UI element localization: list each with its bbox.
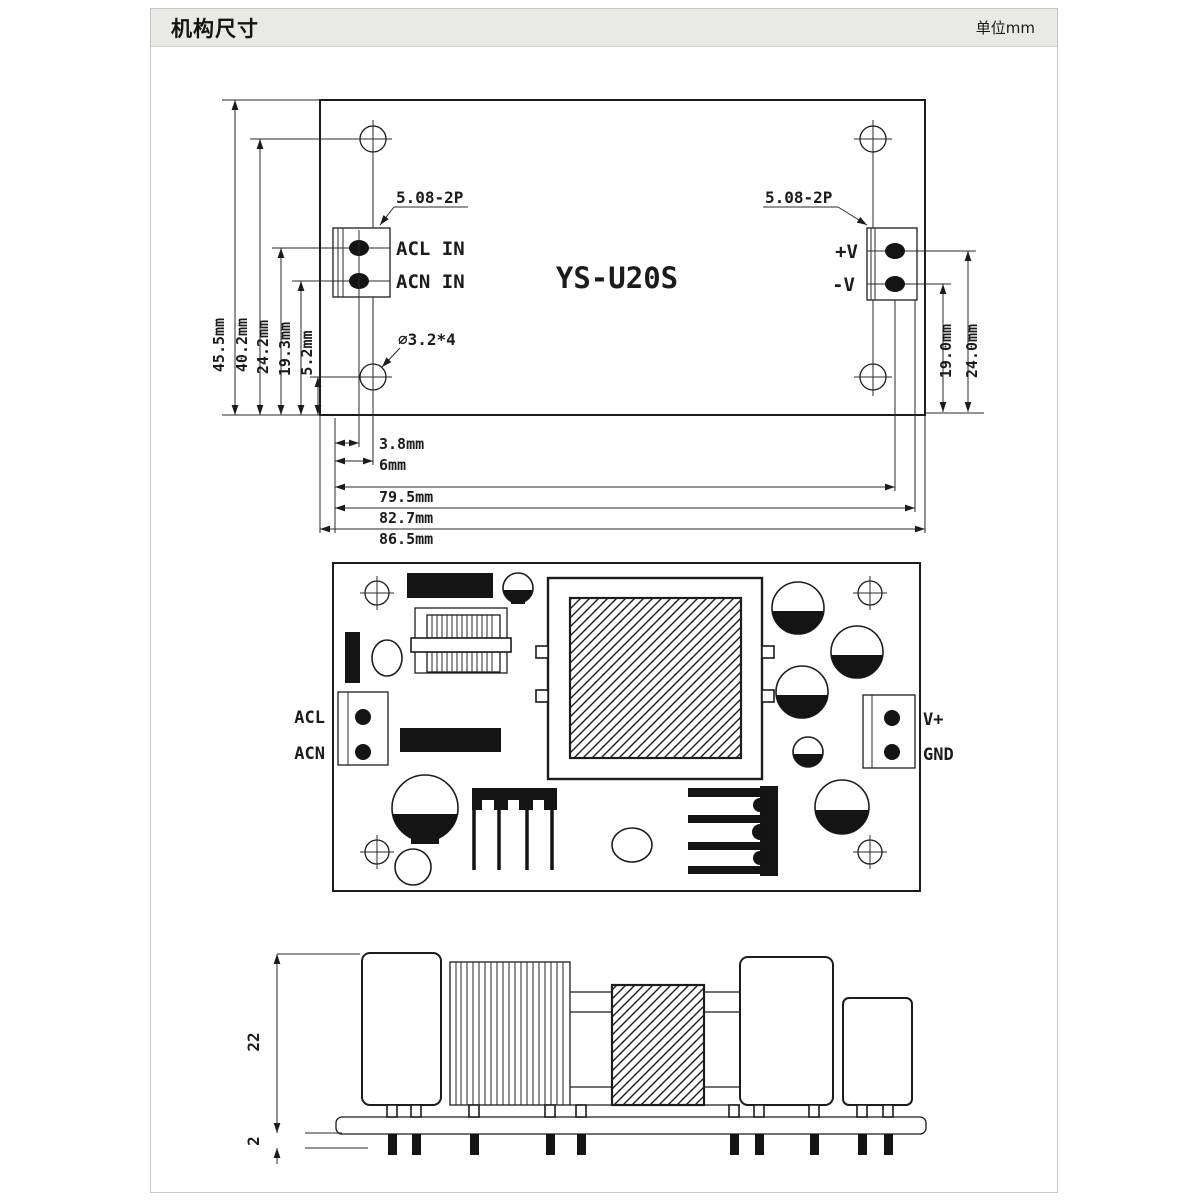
component-disc-capacitor [372,640,402,676]
dim-24-0: 24.0mm [963,324,981,378]
pcb-pin-acl [355,709,371,725]
side-transformer [570,985,740,1105]
heatsink-top-view [411,608,511,673]
dim-45-5: 45.5mm [210,318,228,372]
pcb-label-gnd: GND [923,745,954,765]
capacitor-out-small [793,737,823,767]
pcb-top-view-diagram: ACL ACN [294,563,953,891]
capacitor-out-3 [776,666,828,718]
hole-note-leader: ⌀3.2*4 [382,330,456,367]
side-capacitor-1 [362,953,441,1105]
component-black-bar-mid [400,728,501,752]
pcb-pin-gnd [884,744,900,760]
side-heatsink [450,962,570,1105]
pcb-label-acl: ACL [294,708,325,728]
right-connector-leader: 5.08-2P [763,188,867,225]
component-round-small [395,849,431,885]
right-connector-note: 5.08-2P [765,188,832,207]
pin-minus-v [885,276,905,292]
pin-label-acn-in: ACN IN [396,271,465,293]
component-fuse [345,632,360,683]
side-capacitor-3 [843,998,912,1105]
dim-19-3: 19.3mm [276,322,294,376]
left-connector-leader: 5.08-2P [380,188,468,225]
pcb-terminal-block-left [338,692,388,765]
hole-note: ⌀3.2*4 [398,330,456,349]
dim-5-2: 5.2mm [298,330,316,375]
pcb-label-vplus: V+ [923,710,943,730]
capacitor-bulk-large [392,775,458,844]
dim-height-22: 22 [244,1032,263,1051]
dimension-drawing: ACL IN ACN IN +V -V YS-U20S 5.08-2P [0,0,1200,1200]
dim-79-5: 79.5mm [379,488,433,506]
side-pcb-board [336,1117,926,1134]
side-view-diagram: 22 2 [244,953,926,1164]
transformer-top-view [536,578,774,779]
capacitor-out-2 [831,626,883,678]
dim-40-2: 40.2mm [233,318,251,372]
dim-19-0: 19.0mm [937,324,955,378]
pin-label-plus-v: +V [835,241,858,263]
pcb-terminal-block-right [863,695,915,768]
side-dimension-lines [277,954,368,1164]
capacitor-top-small [503,573,533,604]
side-capacitor-2 [740,957,833,1105]
dim-3-8: 3.8mm [379,435,424,453]
dim-24-2: 24.2mm [254,320,272,374]
pin-plus-v [885,243,905,259]
left-connector-note: 5.08-2P [396,188,463,207]
component-round-center [612,828,652,862]
pin-label-minus-v: -V [832,274,855,296]
dim-6: 6mm [379,456,406,474]
pcb-pin-acn [355,744,371,760]
output-inductor [688,786,778,876]
dim-thickness-2: 2 [244,1136,263,1146]
side-lead-stubs [387,1105,893,1117]
pin-label-acl-in: ACL IN [396,238,465,260]
capacitor-out-4 [815,780,869,834]
model-label: YS-U20S [556,261,678,295]
terminal-block-left [333,228,390,297]
dim-86-5: 86.5mm [379,530,433,548]
pcb-label-acn: ACN [294,744,325,764]
side-solder-pins [388,1134,893,1155]
capacitor-out-1 [772,582,824,634]
page: 机构尺寸 单位mm [0,0,1200,1200]
component-black-bar-top [407,573,493,598]
bridge-rectifier [472,788,557,870]
dim-82-7: 82.7mm [379,509,433,527]
terminal-block-right [867,228,917,300]
pcb-pin-vplus [884,710,900,726]
top-view-diagram: ACL IN ACN IN +V -V YS-U20S 5.08-2P [210,100,984,954]
